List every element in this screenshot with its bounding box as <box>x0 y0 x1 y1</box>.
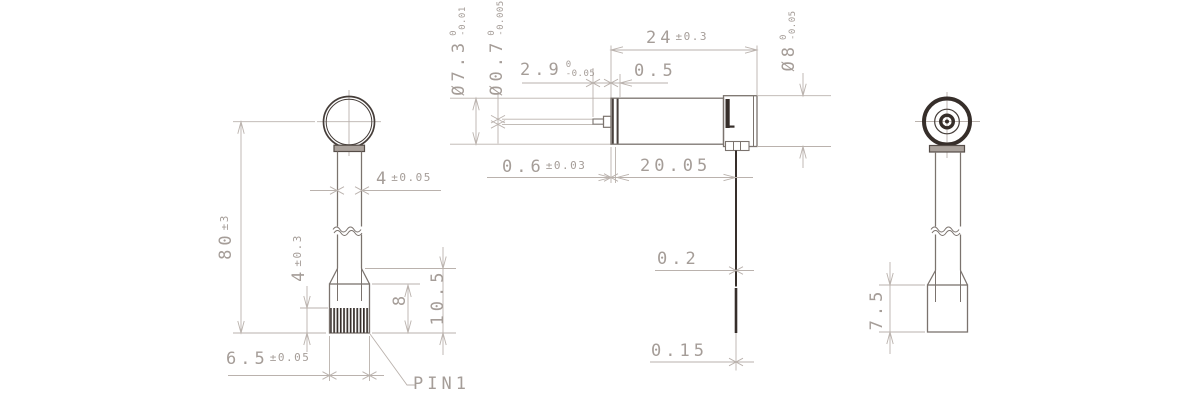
side-view <box>915 92 980 332</box>
dim-value: 4 <box>376 170 390 188</box>
dim-value: 4 <box>290 268 308 282</box>
dim-tolerance: ±0.03 <box>546 157 587 175</box>
dim-shaft-diameter: Ø0.7 0-0.005 <box>488 0 506 95</box>
dim-holder-height: 10.5 <box>429 269 447 326</box>
dim-wire-diameter: 0.2 <box>657 250 700 268</box>
dim-body-diameter: Ø7.3 0-0.01 <box>450 6 468 96</box>
dim-shaft-length: 2.9 0-0.05 <box>520 61 595 79</box>
dim-value: 7.5 <box>868 288 886 331</box>
dim-pin-exposed-length: 4 ±0.3 <box>290 234 308 282</box>
dim-flange-thickness: 0.6 ±0.03 <box>502 158 586 176</box>
dim-value: 6.5 <box>226 350 269 368</box>
front-view-dimensions <box>473 46 831 366</box>
dim-value: Ø0.7 <box>488 39 506 96</box>
dim-overall-height: 80 ±3 <box>217 214 235 260</box>
dim-tolerance: ±0.05 <box>270 349 311 367</box>
dim-base-height: 8 <box>391 292 409 306</box>
dim-value: Ø7.3 <box>450 39 468 96</box>
front-cap-lines <box>613 99 618 144</box>
side-base-block <box>928 285 968 332</box>
left-view-dimensions <box>228 122 456 385</box>
dim-terminal-position: 20.05 <box>640 157 711 175</box>
terminal-block <box>726 142 750 151</box>
dim-tolerance: ±0.05 <box>391 169 432 187</box>
pin-label-text: PIN1 <box>413 375 470 393</box>
motor-body <box>611 98 724 144</box>
side-neck-band <box>930 146 965 153</box>
dim-value: 20.05 <box>640 157 711 175</box>
side-shaft-center <box>945 120 949 124</box>
shaft-collar <box>604 116 612 127</box>
dim-base-width: 6.5 ±0.05 <box>226 350 310 368</box>
end-cap-slot <box>726 99 730 128</box>
dim-value: 0.5 <box>634 62 677 80</box>
dim-value: 80 <box>217 231 235 259</box>
pin-leader-line <box>370 334 415 385</box>
dim-value: 0.15 <box>651 342 708 360</box>
dim-value: 8 <box>391 292 409 306</box>
dim-value: 24 <box>646 29 674 47</box>
dim-tolerance: 0-0.005 <box>488 0 505 36</box>
dim-base-depth: 7.5 <box>868 288 886 331</box>
dim-body-length: 24 ±0.3 <box>646 29 708 47</box>
dim-tolerance: 0-0.01 <box>450 6 467 36</box>
dim-value: Ø8 <box>780 43 798 71</box>
dim-cap-thickness: 0.5 <box>634 62 677 80</box>
pin-label: PIN1 <box>413 375 470 393</box>
dim-end-cap-diameter: Ø8 0-0.05 <box>780 10 798 71</box>
left-neck-band <box>334 145 365 151</box>
dim-tolerance: 0-0.05 <box>780 10 797 40</box>
engineering-drawing: Ø7.3 0-0.01 Ø0.7 0-0.005 2.9 0-0.05 0.5 … <box>0 0 1200 400</box>
dim-value: 2.9 <box>520 61 563 79</box>
dim-value: 10.5 <box>429 269 447 326</box>
front-view <box>450 93 757 371</box>
drawing-canvas <box>0 0 1200 400</box>
dim-wire-tip-diameter: 0.15 <box>651 342 708 360</box>
left-view <box>317 90 381 333</box>
dim-value: 0.2 <box>657 250 700 268</box>
dim-tolerance: 0-0.05 <box>566 61 596 78</box>
motor-shaft <box>593 119 604 124</box>
dim-value: 0.6 <box>502 158 545 176</box>
dim-tolerance: ±0.3 <box>289 234 307 267</box>
dim-tolerance: ±3 <box>216 214 234 230</box>
pin-hatch <box>330 308 369 333</box>
dim-tolerance: ±0.3 <box>675 28 708 46</box>
dim-stem-width: 4 ±0.05 <box>376 170 432 188</box>
